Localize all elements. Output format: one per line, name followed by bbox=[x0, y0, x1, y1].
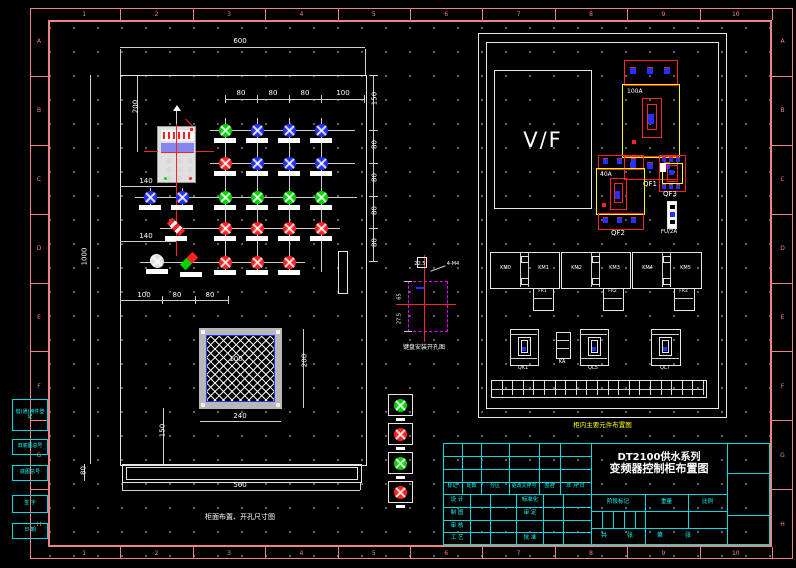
line bbox=[727, 515, 770, 516]
detail-leader-label: 4-M4 bbox=[440, 262, 466, 267]
margin-block-tracing-no: 底图总号 bbox=[12, 465, 48, 481]
device-handle bbox=[522, 347, 526, 351]
label-plate bbox=[246, 138, 268, 143]
terminal-cell bbox=[577, 381, 588, 395]
dim-line bbox=[90, 75, 91, 464]
label-plate bbox=[278, 171, 300, 176]
centerline bbox=[424, 255, 425, 342]
device-label: KA bbox=[549, 360, 575, 365]
label-plate bbox=[139, 205, 161, 210]
sig-label: 制 图 bbox=[444, 510, 470, 516]
line bbox=[602, 511, 603, 528]
line bbox=[591, 528, 727, 529]
label-plate bbox=[171, 205, 193, 210]
label-plate bbox=[214, 236, 236, 241]
link bbox=[592, 278, 600, 285]
line bbox=[443, 532, 591, 533]
terminal bbox=[662, 184, 666, 189]
line bbox=[443, 520, 591, 521]
tick bbox=[404, 281, 412, 282]
weight-label: 重量 bbox=[645, 499, 688, 505]
label-plate bbox=[246, 270, 268, 275]
line bbox=[645, 528, 646, 545]
indicator-lamp bbox=[251, 157, 264, 170]
dim-bottom: 100 bbox=[126, 292, 162, 299]
indicator-lamp bbox=[315, 222, 328, 235]
device-label: QL7 bbox=[645, 366, 685, 371]
dim-bottom: 80 bbox=[162, 292, 192, 299]
sig-label: 标准化 bbox=[517, 497, 543, 503]
indicator-lamp bbox=[219, 191, 232, 204]
indicator-lamp bbox=[251, 256, 264, 269]
indicator-lamp bbox=[251, 191, 264, 204]
dim-bottom: 80 bbox=[195, 292, 225, 299]
terminal-cell bbox=[619, 381, 630, 395]
terminal-cell bbox=[598, 381, 609, 395]
terminal bbox=[617, 158, 622, 164]
rev-header: 年 月 日 bbox=[560, 484, 591, 490]
contactor-label: KM0 bbox=[492, 266, 519, 271]
rev-header: 处数 bbox=[462, 484, 481, 490]
link bbox=[521, 278, 529, 285]
terminal-cell bbox=[672, 381, 683, 395]
terminal-strip bbox=[491, 380, 707, 398]
detail-dim: 22.5 bbox=[408, 262, 432, 267]
indicator-lamp bbox=[315, 157, 328, 170]
line bbox=[727, 473, 770, 474]
tick bbox=[369, 228, 378, 229]
dim-line bbox=[120, 186, 176, 187]
dim-line bbox=[225, 99, 364, 100]
front-view-caption: 柜面布置、开孔尺寸图 bbox=[180, 514, 300, 521]
tick bbox=[369, 130, 378, 131]
sheets-total-label: 共 bbox=[598, 533, 610, 540]
qf3-label: QF3 bbox=[658, 191, 682, 198]
line bbox=[556, 348, 569, 349]
dim-top-offset: 200 bbox=[133, 92, 140, 122]
line bbox=[563, 494, 564, 545]
terminal-cell bbox=[640, 381, 651, 395]
terminal-cell bbox=[587, 381, 598, 395]
ext-line bbox=[365, 49, 366, 75]
mesh-screw bbox=[201, 403, 205, 407]
scale-label: 比例 bbox=[688, 499, 727, 505]
fuse-band bbox=[670, 212, 675, 217]
dim-line bbox=[200, 421, 281, 422]
vent-mesh bbox=[206, 335, 275, 402]
cutout-detail-caption: 键盘安装开孔图 bbox=[384, 345, 464, 351]
indicator-lamp bbox=[283, 124, 296, 137]
terminal-cell bbox=[630, 381, 641, 395]
line bbox=[727, 443, 728, 545]
marker-dot bbox=[602, 203, 606, 207]
label-plate bbox=[396, 476, 405, 479]
terminal-cell bbox=[556, 381, 567, 395]
label-plate bbox=[278, 236, 300, 241]
qf1-handle bbox=[648, 114, 654, 124]
qf2-handle bbox=[615, 191, 620, 199]
terminal bbox=[664, 67, 670, 74]
tick bbox=[369, 196, 378, 197]
label-plate bbox=[310, 171, 332, 176]
label-plate bbox=[396, 505, 405, 508]
qf3-mark bbox=[660, 163, 666, 172]
label-plate bbox=[214, 205, 236, 210]
marker-dot bbox=[632, 140, 636, 144]
terminal-cell bbox=[693, 381, 704, 395]
centerline bbox=[396, 304, 456, 305]
fuse-band bbox=[670, 205, 675, 209]
dim-140b: 140 bbox=[126, 233, 166, 240]
dim-row: 80 bbox=[372, 133, 379, 157]
dim-row: 80 bbox=[372, 199, 379, 223]
fuse-label: FU/2A bbox=[652, 230, 686, 236]
indicator-lamp bbox=[219, 157, 232, 170]
relay-label: FR3 bbox=[674, 290, 693, 295]
terminal bbox=[617, 217, 622, 223]
sig-label: 设 计 bbox=[444, 497, 470, 503]
terminal bbox=[631, 158, 636, 164]
mesh-screw bbox=[276, 330, 280, 334]
sig-label: 工 艺 bbox=[444, 535, 470, 541]
line bbox=[635, 511, 636, 528]
detail-dim: 65 bbox=[398, 287, 403, 307]
dim-row: 80 bbox=[372, 231, 379, 255]
line bbox=[443, 507, 591, 508]
sig-label: 批 准 bbox=[517, 535, 543, 541]
contactor-label: KM1 bbox=[530, 266, 557, 271]
terminal bbox=[669, 157, 673, 162]
tick bbox=[369, 75, 378, 76]
stage-label: 阶段标记 bbox=[591, 499, 645, 505]
terminal-cell bbox=[651, 381, 662, 395]
terminal bbox=[676, 184, 680, 189]
line bbox=[470, 494, 471, 545]
dim-col: 100 bbox=[325, 90, 361, 97]
indicator-lamp bbox=[219, 222, 232, 235]
rev-header: 标记 bbox=[443, 484, 462, 490]
back-view-caption: 柜内主要元件布置图 bbox=[545, 419, 660, 429]
terminal-cell bbox=[503, 381, 514, 395]
label-plate bbox=[278, 138, 300, 143]
terminal bbox=[603, 217, 608, 223]
contactor-label: KM2 bbox=[563, 266, 590, 271]
label-plate bbox=[278, 270, 300, 275]
dim-line bbox=[122, 490, 360, 491]
tick bbox=[369, 163, 378, 164]
tick bbox=[364, 95, 365, 103]
label-plate bbox=[246, 205, 268, 210]
line bbox=[443, 494, 591, 495]
label-plate bbox=[146, 269, 168, 274]
label-plate bbox=[214, 138, 236, 143]
label-plate bbox=[246, 236, 268, 241]
relay-label: FR1 bbox=[533, 290, 552, 295]
device-label: QL5 bbox=[573, 366, 613, 371]
line bbox=[510, 334, 537, 335]
dim-mesh-below: 150 bbox=[160, 419, 167, 443]
door-lamp bbox=[394, 486, 407, 499]
terminal bbox=[662, 157, 666, 162]
fuse-band bbox=[670, 220, 675, 224]
door-lamp-box bbox=[388, 394, 413, 416]
link bbox=[521, 256, 529, 263]
door-lamp bbox=[394, 457, 407, 470]
tick bbox=[321, 95, 322, 103]
terminal bbox=[669, 184, 673, 189]
dim-row: 150 bbox=[372, 87, 379, 111]
link bbox=[663, 256, 671, 263]
device-handle bbox=[663, 347, 667, 351]
mesh-screw bbox=[201, 330, 205, 334]
sheet-number-unit: 张 bbox=[682, 533, 694, 540]
indicator-lamp bbox=[283, 222, 296, 235]
qf1-rating: 100A bbox=[627, 89, 651, 95]
dim-line bbox=[120, 300, 228, 301]
tick bbox=[369, 261, 378, 262]
sig-label: 审 核 bbox=[444, 523, 470, 529]
dim-base-width: 560 bbox=[215, 482, 265, 489]
tick bbox=[228, 296, 229, 304]
sheet-number-label: 第 bbox=[654, 533, 666, 540]
dim-row: 80 bbox=[372, 166, 379, 190]
cutout-detail-outline bbox=[408, 281, 448, 332]
contactor-label: KM3 bbox=[601, 266, 628, 271]
margin-block-old-tracing-no: 旧底图总号 bbox=[12, 439, 48, 455]
line bbox=[443, 456, 591, 457]
label-plate bbox=[310, 236, 332, 241]
terminal-cell bbox=[513, 381, 524, 395]
dim-col: 80 bbox=[258, 90, 288, 97]
margin-block-borrowed-parts: 借(通)用件登记 bbox=[12, 399, 48, 431]
margin-block-signature: 签 字 bbox=[12, 495, 48, 513]
label-plate bbox=[214, 171, 236, 176]
indicator-lamp bbox=[219, 124, 232, 137]
dim-col: 80 bbox=[290, 90, 320, 97]
terminal bbox=[630, 67, 636, 74]
indicator-lamp bbox=[315, 191, 328, 204]
dim-col: 80 bbox=[226, 90, 256, 97]
dim-mesh-center: 100 bbox=[219, 356, 253, 363]
door-indicator-strip bbox=[386, 394, 416, 516]
drawing-title: 变频器控制柜布置图 bbox=[593, 460, 725, 476]
sheets-total-unit: 张 bbox=[624, 533, 636, 540]
dim-height: 1000 bbox=[82, 242, 89, 272]
contactor-label: KM4 bbox=[634, 266, 661, 271]
ext-line bbox=[120, 49, 121, 75]
line bbox=[603, 298, 622, 299]
indicator-lamp bbox=[151, 255, 164, 268]
indicator-lamp bbox=[251, 124, 264, 137]
tick bbox=[120, 296, 121, 304]
dim-mesh-width: 240 bbox=[220, 413, 260, 420]
line bbox=[624, 511, 625, 528]
line bbox=[651, 334, 679, 335]
tick bbox=[404, 331, 412, 332]
device-label: QK1 bbox=[503, 366, 543, 371]
line bbox=[580, 358, 607, 359]
detail-mark bbox=[416, 287, 424, 289]
dim-width: 600 bbox=[190, 38, 290, 45]
link bbox=[592, 256, 600, 263]
line bbox=[580, 334, 607, 335]
mesh-screw bbox=[276, 403, 280, 407]
fuse-body bbox=[667, 201, 677, 229]
label-plate bbox=[396, 418, 405, 421]
label-plate bbox=[214, 270, 236, 275]
rev-header: 分区 bbox=[481, 484, 509, 490]
indicator-lamp bbox=[283, 256, 296, 269]
door-lamp-box bbox=[388, 423, 413, 445]
line bbox=[543, 494, 544, 545]
dim-140a: 140 bbox=[126, 178, 166, 185]
qf2-label: QF2 bbox=[606, 230, 630, 237]
terminal bbox=[647, 67, 653, 74]
sig-label: 审 定 bbox=[517, 510, 543, 516]
door-lamp-box bbox=[388, 452, 413, 474]
terminal bbox=[676, 157, 680, 162]
vfd-unit: V/F bbox=[494, 70, 592, 209]
rev-header: 更改文件号 bbox=[509, 484, 539, 490]
contactor-label: KM5 bbox=[672, 266, 699, 271]
terminal-cell bbox=[662, 381, 673, 395]
terminal bbox=[603, 158, 608, 164]
indicator-lamp bbox=[283, 191, 296, 204]
dim-line bbox=[120, 47, 365, 48]
door-lamp bbox=[394, 428, 407, 441]
line bbox=[613, 511, 614, 528]
indicator-lamp bbox=[251, 222, 264, 235]
indicator-lamp bbox=[176, 191, 189, 204]
ext-line bbox=[122, 483, 123, 490]
line bbox=[510, 358, 537, 359]
dim-line bbox=[120, 241, 176, 242]
detail-dim: 27.5 bbox=[398, 309, 403, 329]
cad-drawing-sheet: 12345678910 12345678910 ABCDEFGH ABCDEFG… bbox=[0, 0, 796, 568]
door-lamp bbox=[394, 399, 407, 412]
terminal-cell bbox=[524, 381, 535, 395]
line bbox=[490, 494, 491, 545]
line bbox=[651, 358, 679, 359]
terminal-cell bbox=[566, 381, 577, 395]
line bbox=[533, 298, 552, 299]
terminal bbox=[647, 162, 653, 169]
label-plate bbox=[396, 447, 405, 450]
label-plate bbox=[310, 138, 332, 143]
terminal-cell bbox=[492, 381, 503, 395]
terminal-cell bbox=[534, 381, 545, 395]
dim-mesh-size: 200 bbox=[302, 349, 309, 373]
device-ka bbox=[556, 332, 571, 359]
indicator-lamp bbox=[283, 157, 296, 170]
indicator-lamp bbox=[144, 191, 157, 204]
rev-header: 签名 bbox=[539, 484, 560, 490]
label-plate bbox=[310, 205, 332, 210]
terminal-cell bbox=[545, 381, 556, 395]
terminal-cell bbox=[609, 381, 620, 395]
line bbox=[443, 469, 591, 470]
label-plate bbox=[278, 205, 300, 210]
line bbox=[556, 340, 569, 341]
qf3-handle bbox=[669, 170, 674, 175]
margin-block-date: 日 期 bbox=[12, 523, 48, 539]
door-lamp-box bbox=[388, 481, 413, 503]
dim-base-height: 80 bbox=[81, 459, 88, 483]
line bbox=[674, 298, 693, 299]
device-handle bbox=[592, 347, 596, 351]
line bbox=[591, 511, 727, 512]
ext-line bbox=[360, 483, 361, 490]
link bbox=[663, 278, 671, 285]
indicator-lamp bbox=[315, 124, 328, 137]
relay-label: FR2 bbox=[603, 290, 622, 295]
terminal bbox=[631, 217, 636, 223]
label-plate bbox=[246, 171, 268, 176]
line bbox=[591, 494, 727, 495]
indicator-lamp bbox=[219, 256, 232, 269]
terminal-cell bbox=[683, 381, 694, 395]
